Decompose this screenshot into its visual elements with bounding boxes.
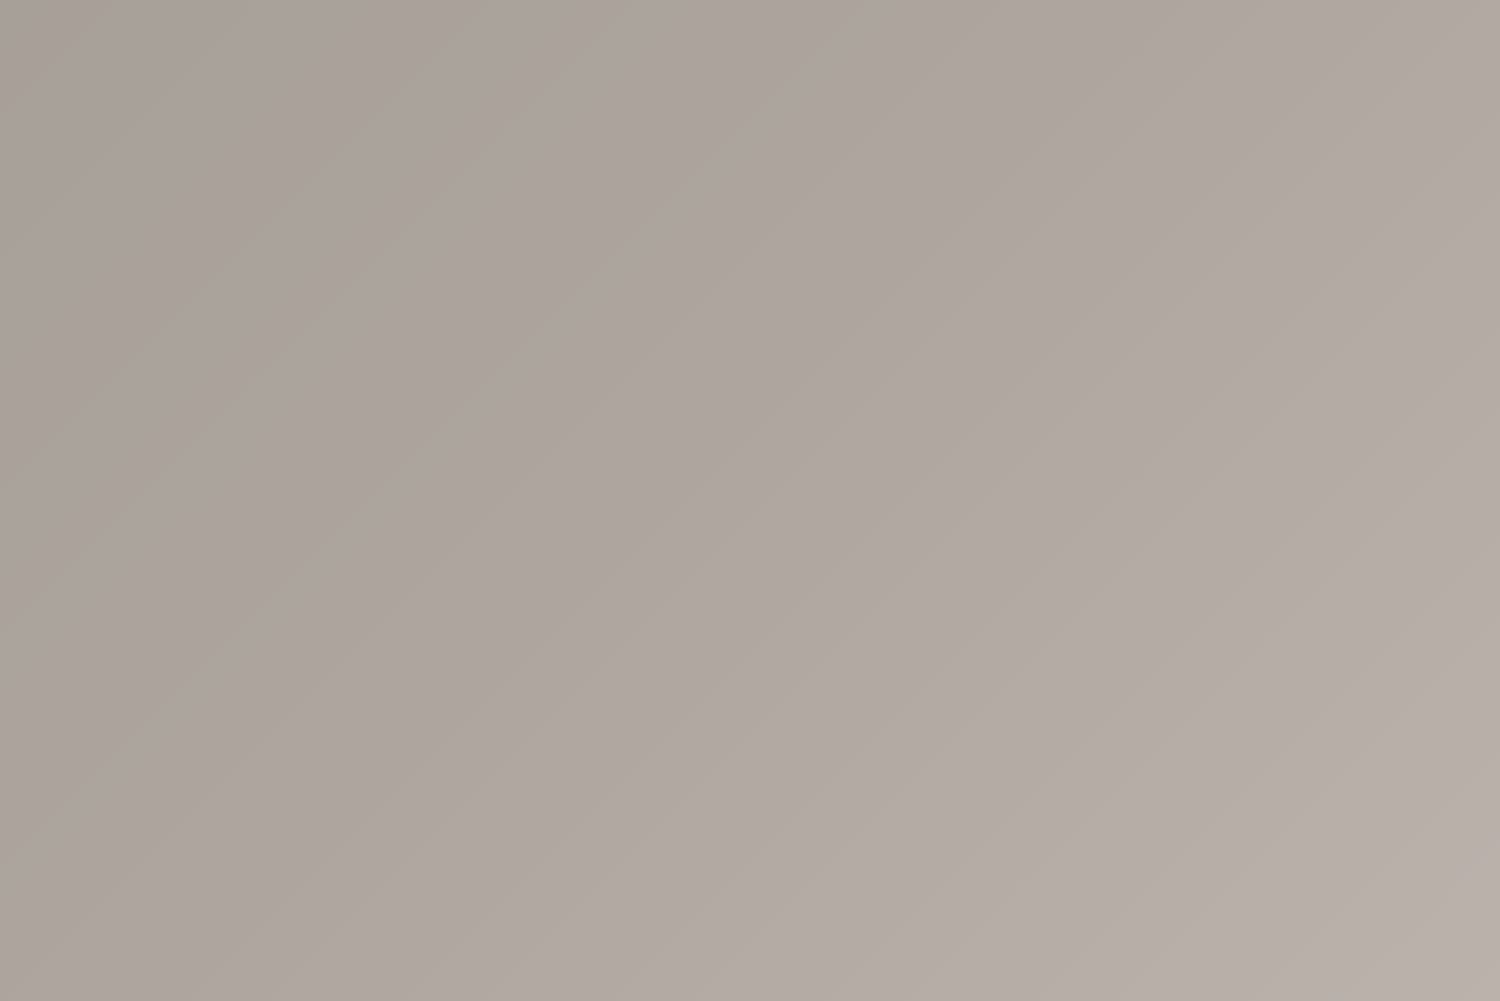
render-image bbox=[0, 0, 1500, 1001]
villa-development-render bbox=[0, 0, 1500, 1001]
